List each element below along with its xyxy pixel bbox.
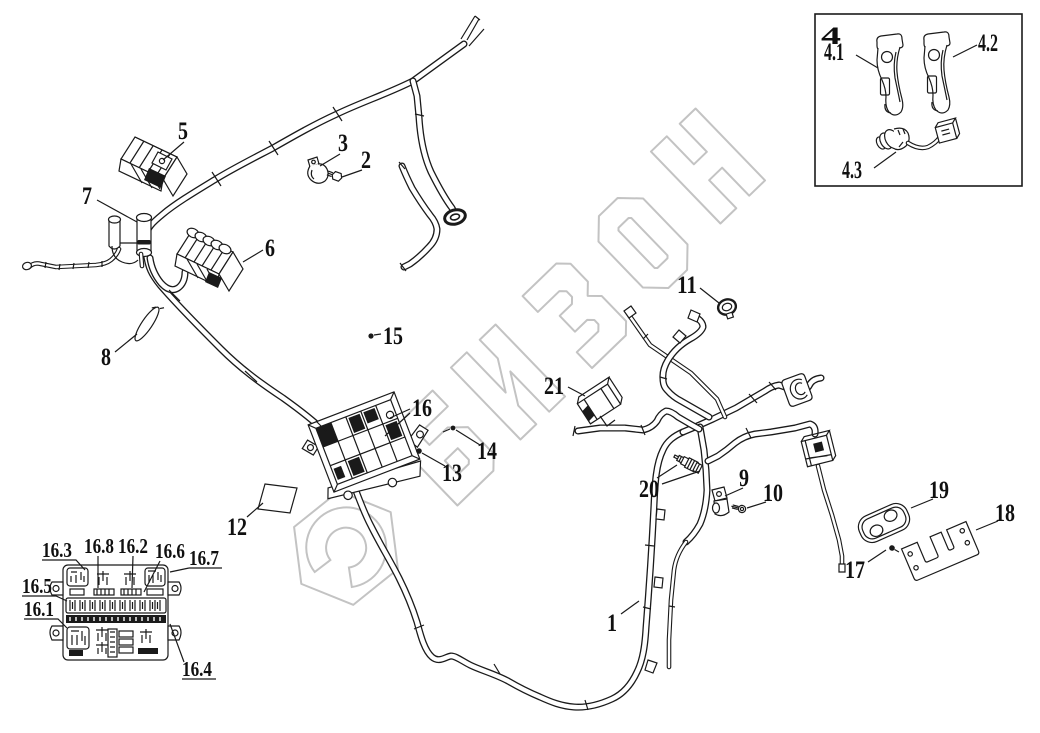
svg-text:11: 11: [677, 272, 697, 299]
svg-text:16.7: 16.7: [189, 546, 219, 570]
svg-text:16.5: 16.5: [22, 574, 52, 598]
svg-text:16.1: 16.1: [24, 597, 54, 621]
svg-text:8: 8: [101, 344, 111, 371]
svg-text:7: 7: [82, 183, 92, 210]
svg-text:14: 14: [477, 438, 497, 465]
svg-text:16.8: 16.8: [84, 534, 114, 558]
svg-text:15: 15: [383, 323, 403, 350]
svg-text:16.2: 16.2: [118, 534, 148, 558]
svg-text:4.1: 4.1: [824, 39, 844, 66]
svg-text:5: 5: [178, 118, 188, 145]
svg-text:6: 6: [265, 235, 275, 262]
svg-text:16: 16: [412, 395, 432, 422]
svg-text:17: 17: [845, 557, 865, 584]
svg-text:10: 10: [763, 480, 783, 507]
svg-text:9: 9: [739, 465, 749, 492]
svg-text:16.3: 16.3: [42, 538, 72, 562]
svg-text:16.4: 16.4: [182, 657, 212, 681]
svg-text:2: 2: [361, 147, 371, 174]
svg-text:3: 3: [338, 130, 348, 157]
svg-text:4.3: 4.3: [842, 157, 862, 184]
svg-text:12: 12: [227, 514, 247, 541]
svg-text:4.2: 4.2: [978, 30, 998, 57]
svg-text:13: 13: [442, 460, 462, 487]
svg-text:16.6: 16.6: [155, 539, 185, 563]
svg-text:21: 21: [544, 373, 564, 400]
svg-text:20: 20: [639, 476, 659, 503]
svg-text:18: 18: [995, 500, 1015, 527]
svg-text:1: 1: [607, 610, 617, 637]
